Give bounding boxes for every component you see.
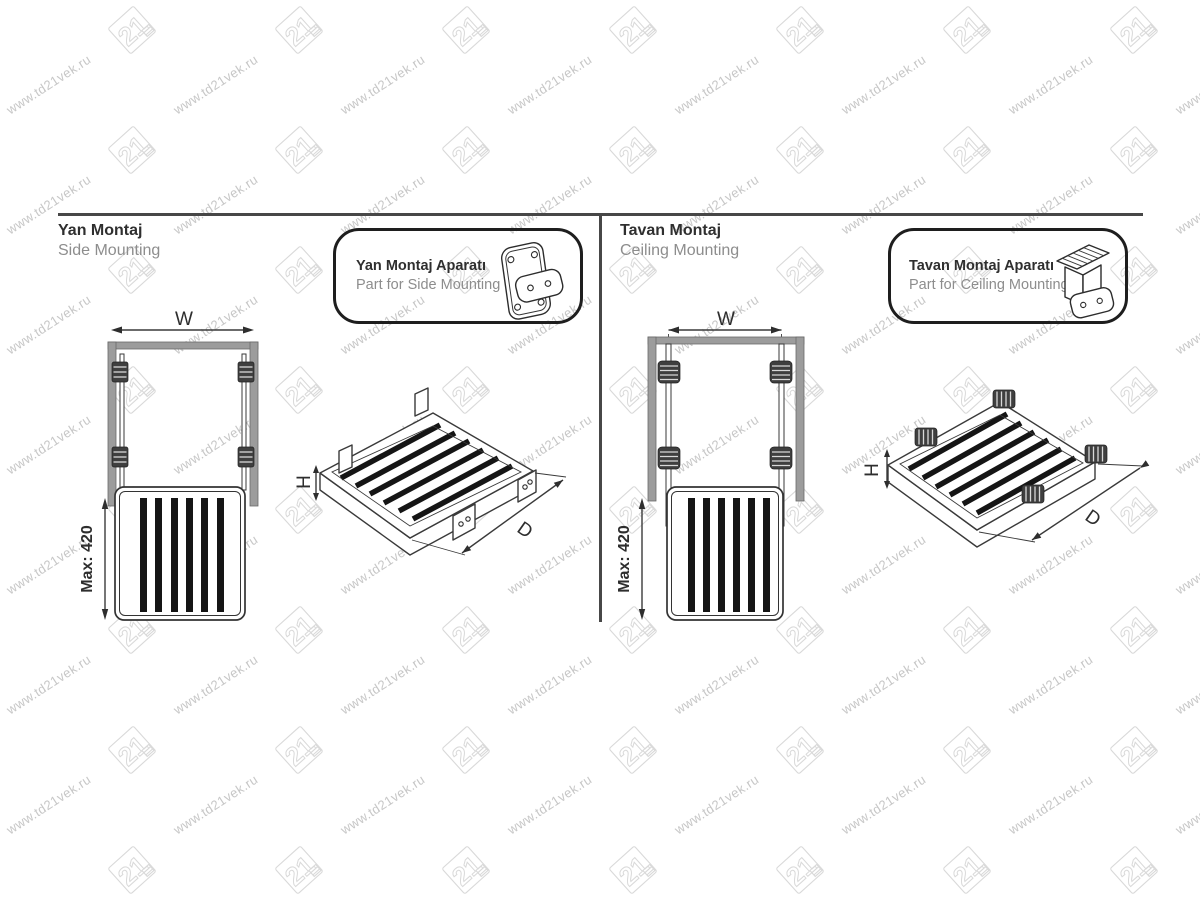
side-bracket <box>112 362 128 382</box>
ceiling-depth-label: D <box>1081 506 1104 531</box>
side-part-title-en: Part for Side Mounting <box>356 276 500 295</box>
side-front-view: W <box>75 300 295 630</box>
catalog-sheet: www.td21vek.ruwww.td21vek.ruwww.td21vek.… <box>0 0 1200 900</box>
ceiling-width-label: W <box>717 309 735 330</box>
ceiling-mounting-part-icon <box>1051 233 1115 325</box>
cabinet-side-panel-right <box>796 337 804 501</box>
ceiling-max-dimension: Max: 420 <box>616 498 645 620</box>
ceiling-part-box: Tavan Montaj Aparatı Part for Ceiling Mo… <box>888 228 1128 324</box>
ceiling-section-header: Tavan Montaj Ceiling Mounting <box>620 221 739 261</box>
side-max-dimension: Max: 420 <box>79 498 108 620</box>
ceiling-3d-view: H D <box>855 368 1155 573</box>
basket-frame <box>115 487 245 620</box>
side-mounting-part-icon <box>496 233 566 325</box>
ceiling-height-dimension: H <box>862 449 890 489</box>
section-divider <box>599 213 602 622</box>
ceiling-front-view: W <box>610 300 840 630</box>
ceiling-part-title-en: Part for Ceiling Mounting <box>909 276 1069 295</box>
side-part-box: Yan Montaj Aparatı Part for Side Mountin… <box>333 228 583 324</box>
cabinet-top-panel <box>108 342 258 349</box>
ceiling-mount-block <box>993 390 1015 408</box>
side-mount-tab <box>415 388 428 416</box>
side-bracket <box>112 447 128 467</box>
side-max-label: Max: 420 <box>79 525 96 593</box>
ceiling-mount-block <box>1022 485 1044 503</box>
ceiling-height-label: H <box>862 463 883 477</box>
ceiling-bracket <box>658 361 680 383</box>
side-3d-view: H D <box>295 378 585 570</box>
side-bracket <box>238 447 254 467</box>
ceiling-title-en: Ceiling Mounting <box>620 241 739 261</box>
side-width-label: W <box>175 309 193 330</box>
ceiling-bracket <box>770 361 792 383</box>
cabinet-side-panel-left <box>648 337 656 501</box>
ceiling-bracket <box>770 447 792 469</box>
side-title-tr: Yan Montaj <box>58 221 160 241</box>
side-section-header: Yan Montaj Side Mounting <box>58 221 160 261</box>
side-height-label: H <box>295 475 315 489</box>
side-title-en: Side Mounting <box>58 241 160 261</box>
side-part-title-tr: Yan Montaj Aparatı <box>356 257 500 276</box>
side-part-box-text: Yan Montaj Aparatı Part for Side Mountin… <box>356 257 500 295</box>
ceiling-title-tr: Tavan Montaj <box>620 221 739 241</box>
side-height-dimension: H <box>295 465 319 501</box>
ceiling-part-title-tr: Tavan Montaj Aparatı <box>909 257 1069 276</box>
side-bracket <box>238 362 254 382</box>
ceiling-mount-block <box>915 428 937 446</box>
ceiling-max-label: Max: 420 <box>616 525 633 593</box>
ceiling-part-box-text: Tavan Montaj Aparatı Part for Ceiling Mo… <box>909 257 1069 295</box>
ceiling-bracket <box>658 447 680 469</box>
ceiling-mount-block <box>1085 445 1107 463</box>
cabinet-top-panel <box>648 337 804 344</box>
side-depth-label: D <box>513 518 536 543</box>
